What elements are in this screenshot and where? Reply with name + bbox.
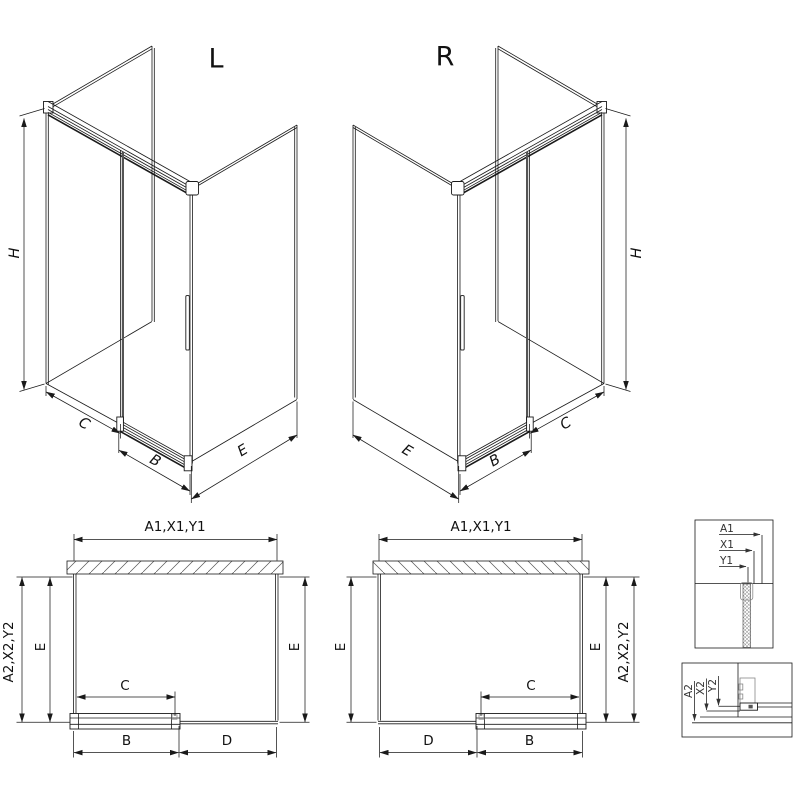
plan-right-dim-side-outer: A2,X2,Y2 xyxy=(616,621,632,682)
iso-right-dim-h: H xyxy=(629,247,645,258)
detail-floor-label-y2: Y2 xyxy=(707,679,719,693)
wall-profile-hatched xyxy=(743,584,751,648)
plan-right-dim-e-right: E xyxy=(588,643,604,652)
plan-right-dim-e-left: E xyxy=(333,643,349,652)
iso-left-title: L xyxy=(208,44,223,75)
iso-right-dim-e: E xyxy=(399,442,416,461)
plan-left-dim-c: C xyxy=(120,678,129,694)
plan-left-dim-d: D xyxy=(222,733,232,749)
plan-left-dim-side-outer: A2,X2,Y2 xyxy=(1,621,17,682)
iso-right-title: R xyxy=(436,42,455,73)
plan-right-dim-b: B xyxy=(525,733,534,749)
plan-view-left: A1,X1,Y1 A2,X2,Y2 E E C B D xyxy=(1,519,310,758)
plan-right-dim-c: C xyxy=(526,678,535,694)
iso-view-right: R H C B E xyxy=(353,42,645,504)
corner-profile-section xyxy=(739,678,792,710)
plan-left-dim-e-right: E xyxy=(287,643,303,652)
detail-floor-label-a2: A2 xyxy=(683,684,695,698)
drawing-canvas: L H C B E R H C B E A1,X1,Y1 A2,X2,Y2 E … xyxy=(0,0,800,800)
plan-view-right: A1,X1,Y1 A2,X2,Y2 E E C D B xyxy=(333,519,640,758)
detail-wall-label-x1: X1 xyxy=(720,539,734,551)
technical-drawing-page: L H C B E R H C B E A1,X1,Y1 A2,X2,Y2 E … xyxy=(0,0,800,800)
iso-view-left: L H C B E xyxy=(7,44,297,504)
detail-floor-profile: A2 X2 Y2 xyxy=(682,663,792,737)
plan-right-dim-top: A1,X1,Y1 xyxy=(450,519,511,535)
iso-left-dim-h: H xyxy=(7,247,23,258)
iso-right-dim-c: C xyxy=(558,414,575,433)
detail-wall-label-a1: A1 xyxy=(720,523,734,535)
plan-right-dim-d: D xyxy=(423,733,433,749)
detail-wall-label-y1: Y1 xyxy=(719,555,733,567)
plan-left-dim-b: B xyxy=(122,733,131,749)
plan-left-dim-e-left: E xyxy=(33,643,49,652)
detail-wall-profile: A1 X1 Y1 xyxy=(695,520,773,648)
iso-left-dim-e: E xyxy=(235,441,252,460)
plan-left-dim-top: A1,X1,Y1 xyxy=(144,519,205,535)
detail-floor-label-x2: X2 xyxy=(695,681,707,695)
iso-left-dim-c: C xyxy=(76,415,93,434)
